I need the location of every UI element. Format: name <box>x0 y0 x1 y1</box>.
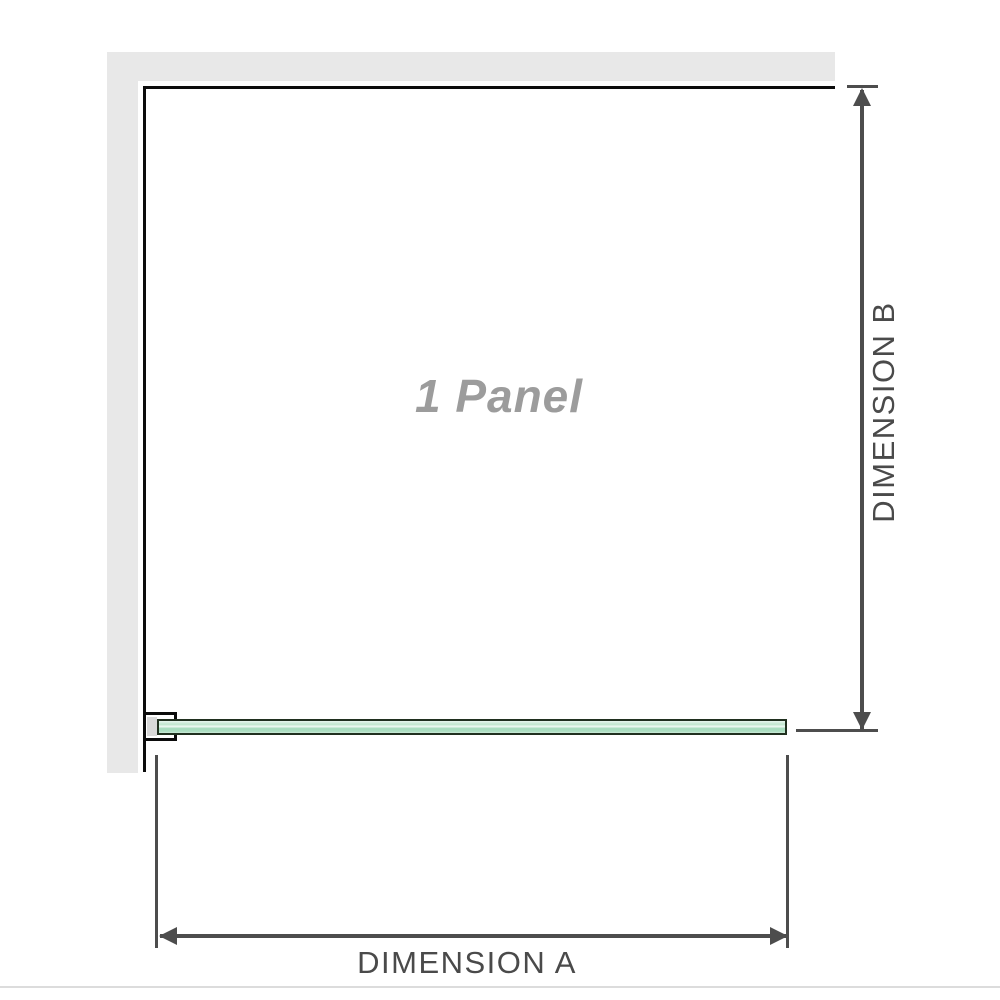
dimension-b-line <box>860 90 864 730</box>
dimension-a-label: DIMENSION A <box>357 945 577 981</box>
dimension-a-line <box>160 934 787 938</box>
panel-dimension-diagram: 1 Panel DIMENSION B DIMENSION A <box>0 0 1000 1000</box>
arrowhead-down-icon <box>853 712 871 730</box>
dimension-a-extension-right <box>786 755 789 948</box>
panel-outline-top <box>143 86 835 89</box>
wall-left-band <box>107 52 138 773</box>
bracket-pad <box>147 717 157 736</box>
dimension-a-extension-left <box>155 755 158 948</box>
dimension-b-label: DIMENSION B <box>866 301 902 522</box>
glass-panel-bar <box>157 719 787 735</box>
arrowhead-left-icon <box>159 927 177 945</box>
wall-top-band <box>107 52 835 81</box>
panel-count-label: 1 Panel <box>415 369 583 423</box>
arrowhead-right-icon <box>770 927 788 945</box>
bottom-card-edge <box>0 986 1000 988</box>
panel-outline-left <box>143 86 146 772</box>
arrowhead-up-icon <box>853 88 871 106</box>
